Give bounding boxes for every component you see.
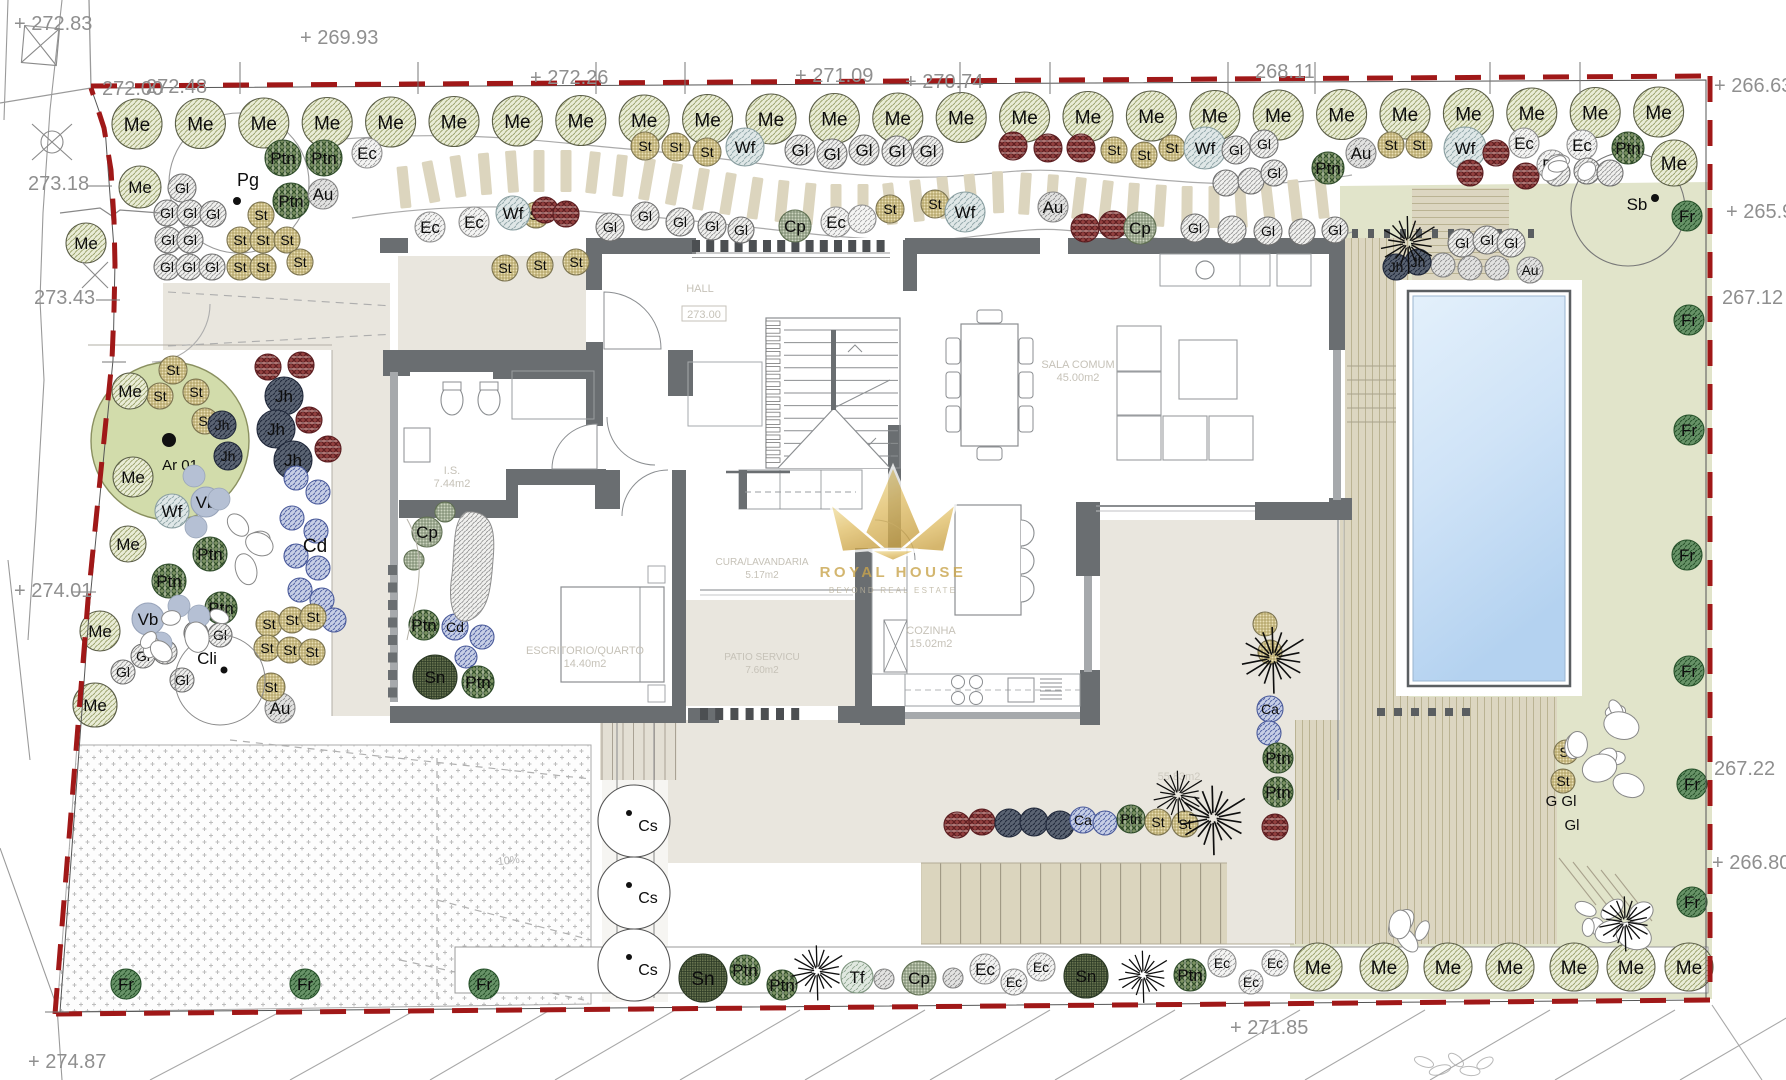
svg-text:Cs: Cs xyxy=(638,818,658,835)
svg-text:272.48: 272.48 xyxy=(146,76,207,98)
svg-text:St: St xyxy=(254,207,267,223)
svg-text:Me: Me xyxy=(1265,106,1291,127)
svg-text:Wf: Wf xyxy=(162,502,183,521)
svg-text:Gl: Gl xyxy=(183,205,197,221)
svg-text:Ec: Ec xyxy=(1243,974,1259,990)
svg-text:St: St xyxy=(264,679,277,695)
svg-text:Me: Me xyxy=(1392,105,1418,126)
svg-text:Me: Me xyxy=(83,696,107,715)
svg-text:Ptn: Ptn xyxy=(1265,783,1291,802)
svg-text:Gl: Gl xyxy=(175,672,189,688)
svg-text:St: St xyxy=(1165,140,1178,156)
svg-text:Me: Me xyxy=(441,112,467,133)
svg-text:+ 265.90: + 265.90 xyxy=(1726,201,1786,223)
svg-text:Gl: Gl xyxy=(920,142,937,161)
svg-text:Wf: Wf xyxy=(1455,139,1476,158)
svg-text:St: St xyxy=(233,232,246,248)
svg-text:15.02m2: 15.02m2 xyxy=(910,638,953,650)
svg-text:Tf: Tf xyxy=(849,968,864,987)
svg-text:Me: Me xyxy=(314,113,340,134)
svg-text:Gl: Gl xyxy=(889,142,906,161)
svg-text:Gl: Gl xyxy=(1455,235,1469,251)
svg-text:Me: Me xyxy=(568,111,594,132)
svg-text:Gl: Gl xyxy=(1229,142,1243,158)
svg-text:Gl: Gl xyxy=(1188,220,1202,236)
svg-text:Sb: Sb xyxy=(1627,195,1648,214)
svg-text:Me: Me xyxy=(1075,107,1101,128)
svg-text:St: St xyxy=(305,644,318,660)
svg-text:Me: Me xyxy=(504,112,530,133)
svg-text:Au: Au xyxy=(1521,262,1538,278)
svg-text:I.S.: I.S. xyxy=(444,465,461,477)
svg-text:Gl: Gl xyxy=(1328,222,1342,238)
svg-text:Me: Me xyxy=(1011,108,1037,129)
svg-text:Me: Me xyxy=(1645,103,1671,124)
svg-text:+ 271.85: + 271.85 xyxy=(1230,1017,1308,1039)
svg-text:Fr: Fr xyxy=(297,975,313,994)
svg-text:Ec: Ec xyxy=(464,213,484,232)
svg-text:Me: Me xyxy=(1371,958,1397,979)
svg-text:Wf: Wf xyxy=(1195,139,1216,158)
svg-text:Vb: Vb xyxy=(138,610,159,629)
svg-text:CURA/LAVANDARIA: CURA/LAVANDARIA xyxy=(716,557,809,568)
svg-text:Me: Me xyxy=(1455,104,1481,125)
svg-text:St: St xyxy=(1556,773,1569,789)
svg-text:Me: Me xyxy=(1561,958,1587,979)
svg-text:Ptn: Ptn xyxy=(156,572,182,591)
svg-text:Cp: Cp xyxy=(784,217,806,236)
svg-text:Gl: Gl xyxy=(161,232,175,248)
svg-text:Gl: Gl xyxy=(638,208,652,224)
svg-text:Me: Me xyxy=(118,382,142,401)
svg-text:St: St xyxy=(256,259,269,275)
svg-text:St: St xyxy=(638,138,651,154)
svg-text:Wf: Wf xyxy=(503,204,524,223)
svg-text:Me: Me xyxy=(1202,106,1228,127)
svg-text:COZINHA: COZINHA xyxy=(906,625,956,637)
svg-text:Me: Me xyxy=(1138,107,1164,128)
svg-text:Au: Au xyxy=(270,699,291,718)
svg-text:Cp: Cp xyxy=(908,969,930,988)
svg-text:Ec: Ec xyxy=(1572,136,1592,155)
svg-text:Jh: Jh xyxy=(215,417,230,433)
svg-text:Ec: Ec xyxy=(1214,955,1230,971)
svg-text:St: St xyxy=(306,609,319,625)
svg-text:Ca: Ca xyxy=(1074,812,1092,828)
svg-text:+ 272.83: + 272.83 xyxy=(14,13,92,35)
svg-text:St: St xyxy=(498,260,511,276)
svg-text:Gl: Gl xyxy=(673,214,687,230)
svg-text:Me: Me xyxy=(377,113,403,134)
svg-text:Au: Au xyxy=(1043,198,1064,217)
svg-text:+ 270.74: + 270.74 xyxy=(905,71,983,93)
svg-text:+ 272.26: + 272.26 xyxy=(530,67,608,89)
svg-text:Ptn: Ptn xyxy=(1615,139,1641,158)
svg-text:Me: Me xyxy=(1618,958,1644,979)
svg-text:+ 266.63: + 266.63 xyxy=(1714,75,1786,97)
svg-text:Me: Me xyxy=(1676,958,1702,979)
svg-text:Fr: Fr xyxy=(1681,421,1697,440)
svg-text:SALA COMUM: SALA COMUM xyxy=(1041,359,1114,371)
svg-text:Me: Me xyxy=(631,111,657,132)
svg-text:267.22: 267.22 xyxy=(1714,758,1775,780)
svg-text:Sn: Sn xyxy=(691,969,714,990)
svg-text:45.00m2: 45.00m2 xyxy=(1057,372,1100,384)
svg-text:HALL: HALL xyxy=(686,283,714,295)
svg-text:+ 266.80: + 266.80 xyxy=(1712,852,1786,874)
svg-text:+ 271.09: + 271.09 xyxy=(795,65,873,87)
svg-text:Cs: Cs xyxy=(638,962,658,979)
svg-text:Fr: Fr xyxy=(476,975,492,994)
svg-text:267.12: 267.12 xyxy=(1722,287,1783,309)
svg-text:Ptn: Ptn xyxy=(769,976,795,995)
svg-text:Fr: Fr xyxy=(1684,775,1700,794)
svg-text:Me: Me xyxy=(1328,105,1354,126)
svg-text:St: St xyxy=(256,232,269,248)
svg-text:10%: 10% xyxy=(497,854,520,868)
svg-text:Me: Me xyxy=(1519,104,1545,125)
svg-text:PATIO SERVICU: PATIO SERVICU xyxy=(724,652,800,663)
svg-text:St: St xyxy=(1151,814,1164,830)
svg-text:Ptn: Ptn xyxy=(197,545,223,564)
svg-text:Me: Me xyxy=(1497,958,1523,979)
svg-text:Me: Me xyxy=(1435,958,1461,979)
svg-text:Gl: Gl xyxy=(603,219,617,235)
svg-text:268.11: 268.11 xyxy=(1255,61,1315,83)
svg-text:St: St xyxy=(669,139,682,155)
svg-text:Me: Me xyxy=(758,110,784,131)
svg-text:Ptn: Ptn xyxy=(1120,811,1141,827)
svg-text:Gl: Gl xyxy=(205,259,219,275)
svg-text:Me: Me xyxy=(1582,103,1608,124)
svg-text:St: St xyxy=(700,144,713,160)
svg-text:Cd: Cd xyxy=(303,536,327,557)
svg-text:Me: Me xyxy=(251,114,277,135)
svg-text:Gl: Gl xyxy=(160,259,174,275)
svg-text:Au: Au xyxy=(313,185,334,204)
svg-text:Me: Me xyxy=(74,234,98,253)
svg-text:Gl: Gl xyxy=(175,180,189,196)
svg-text:Gl: Gl xyxy=(160,205,174,221)
svg-text:Gl: Gl xyxy=(734,222,748,238)
svg-text:Ec: Ec xyxy=(420,218,440,237)
svg-text:Fr: Fr xyxy=(118,975,134,994)
svg-text:BEYOND REAL ESTATE: BEYOND REAL ESTATE xyxy=(829,586,957,595)
svg-text:Au: Au xyxy=(1351,144,1372,163)
svg-text:7.44m2: 7.44m2 xyxy=(434,478,471,490)
svg-text:St: St xyxy=(189,384,202,400)
svg-text:Ca: Ca xyxy=(1261,701,1279,717)
svg-text:Gl: Gl xyxy=(856,141,873,160)
svg-text:Jh: Jh xyxy=(275,387,293,406)
svg-text:Cp: Cp xyxy=(416,523,438,542)
svg-text:Ptn: Ptn xyxy=(1177,966,1203,985)
svg-text:273.00: 273.00 xyxy=(687,309,721,321)
svg-text:St: St xyxy=(280,232,293,248)
svg-text:Gl: Gl xyxy=(824,145,841,164)
svg-text:Gl: Gl xyxy=(1267,165,1281,181)
svg-text:St: St xyxy=(569,254,582,270)
svg-text:St: St xyxy=(1107,142,1120,158)
svg-text:Gl: Gl xyxy=(116,664,130,680)
svg-text:Me: Me xyxy=(187,114,213,135)
svg-text:Gl: Gl xyxy=(1504,235,1518,251)
svg-text:Cp: Cp xyxy=(1129,219,1151,238)
svg-text:+ 274.87: + 274.87 xyxy=(28,1051,106,1073)
svg-text:Gl: Gl xyxy=(1261,223,1275,239)
svg-text:Me: Me xyxy=(128,178,152,197)
svg-text:St: St xyxy=(260,640,273,656)
svg-text:St: St xyxy=(166,362,179,378)
svg-text:Gl: Gl xyxy=(1565,817,1580,834)
svg-text:Ec: Ec xyxy=(1267,955,1283,971)
svg-text:St: St xyxy=(883,201,896,217)
svg-text:Ec: Ec xyxy=(1514,134,1534,153)
svg-text:5.17m2: 5.17m2 xyxy=(745,570,779,581)
svg-text:Gl: Gl xyxy=(1257,136,1271,152)
svg-text:Ec: Ec xyxy=(975,960,995,979)
svg-text:Me: Me xyxy=(1661,154,1687,175)
svg-text:Cd: Cd xyxy=(446,619,464,635)
svg-text:ESCRITORIO/QUARTO: ESCRITORIO/QUARTO xyxy=(526,645,644,657)
svg-text:St: St xyxy=(1137,147,1150,163)
svg-text:St: St xyxy=(1384,137,1397,153)
svg-text:Ptn: Ptn xyxy=(1315,159,1341,178)
svg-text:Gl: Gl xyxy=(182,259,196,275)
svg-text:Me: Me xyxy=(885,109,911,130)
svg-text:55.83m2: 55.83m2 xyxy=(1158,771,1201,783)
svg-text:+ 274.01: + 274.01 xyxy=(14,580,92,602)
svg-text:Me: Me xyxy=(948,108,974,129)
svg-text:St: St xyxy=(1412,137,1425,153)
svg-text:Ec: Ec xyxy=(1006,974,1022,990)
svg-text:Me: Me xyxy=(121,468,145,487)
svg-text:Jh: Jh xyxy=(221,448,236,464)
svg-text:Me: Me xyxy=(124,115,150,136)
svg-text:Sn: Sn xyxy=(1076,967,1097,986)
svg-text:Ptn: Ptn xyxy=(1265,749,1291,768)
svg-text:St: St xyxy=(285,612,298,628)
svg-text:Ec: Ec xyxy=(1033,959,1049,975)
svg-text:St: St xyxy=(233,259,246,275)
svg-text:7.60m2: 7.60m2 xyxy=(745,665,779,676)
svg-text:G Gl: G Gl xyxy=(1546,793,1577,810)
svg-text:Ptn: Ptn xyxy=(270,149,296,168)
svg-text:Me: Me xyxy=(694,110,720,131)
svg-text:St: St xyxy=(283,642,296,658)
svg-text:St: St xyxy=(153,388,166,404)
svg-text:Ptn: Ptn xyxy=(732,961,758,980)
svg-text:Gl: Gl xyxy=(183,232,197,248)
svg-text:273.43: 273.43 xyxy=(34,287,95,309)
svg-text:Pg: Pg xyxy=(237,170,259,190)
svg-text:Wf: Wf xyxy=(955,203,976,222)
svg-text:14.40m2: 14.40m2 xyxy=(564,658,607,670)
svg-text:273.18: 273.18 xyxy=(28,173,89,195)
svg-text:St: St xyxy=(262,616,275,632)
svg-text:Fr: Fr xyxy=(1679,546,1695,565)
svg-text:+ 269.93: + 269.93 xyxy=(300,27,378,49)
svg-text:St: St xyxy=(533,257,546,273)
svg-text:St: St xyxy=(928,196,941,212)
svg-text:Sn: Sn xyxy=(425,668,446,687)
svg-text:Wf: Wf xyxy=(735,138,756,157)
svg-text:Me: Me xyxy=(821,109,847,130)
svg-text:Gl: Gl xyxy=(1480,232,1494,248)
svg-text:Fr: Fr xyxy=(1684,893,1700,912)
svg-text:Ec: Ec xyxy=(357,144,377,163)
svg-text:Gl: Gl xyxy=(705,218,719,234)
svg-text:Jh: Jh xyxy=(267,420,285,439)
svg-text:Ec: Ec xyxy=(826,213,846,232)
svg-text:Me: Me xyxy=(116,535,140,554)
svg-text:Ptn: Ptn xyxy=(465,673,491,692)
svg-text:Fr: Fr xyxy=(1679,207,1695,226)
svg-text:Gl: Gl xyxy=(792,141,809,160)
svg-text:Ptn: Ptn xyxy=(411,616,437,635)
svg-text:Me: Me xyxy=(88,622,112,641)
svg-text:Fr: Fr xyxy=(1681,662,1697,681)
svg-text:Me: Me xyxy=(1305,958,1331,979)
svg-text:Ptn: Ptn xyxy=(278,192,304,211)
svg-text:Fr: Fr xyxy=(1681,311,1697,330)
svg-text:Gl: Gl xyxy=(206,206,220,222)
svg-text:ROYAL HOUSE: ROYAL HOUSE xyxy=(820,564,967,581)
svg-text:Cs: Cs xyxy=(638,890,658,907)
svg-text:Ptn: Ptn xyxy=(311,149,337,168)
svg-text:St: St xyxy=(293,254,306,270)
